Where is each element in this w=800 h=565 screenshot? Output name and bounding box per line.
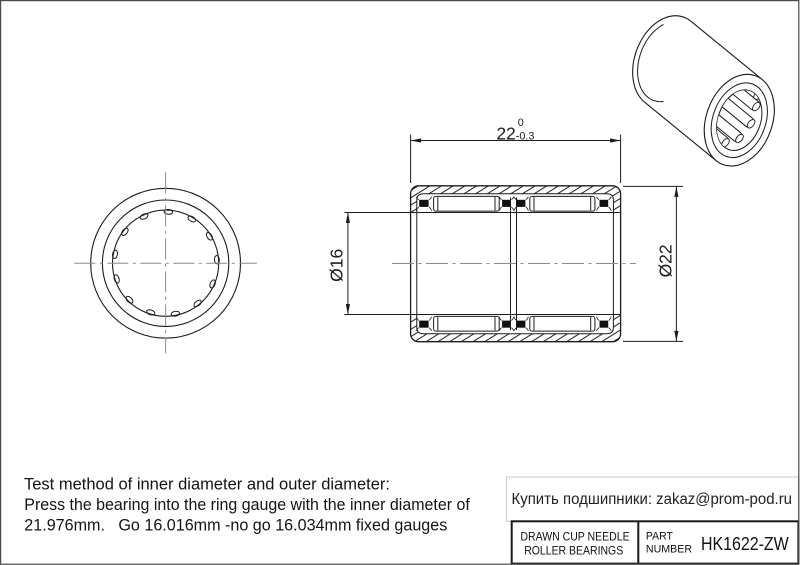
svg-text:HK1622-ZW: HK1622-ZW [701,533,789,554]
svg-text:Ø22: Ø22 [655,244,675,277]
svg-text:-0.3: -0.3 [516,131,535,143]
svg-text:21.976mm. Go 16.016mm -no go: 21.976mm. Go 16.016mm -no go 16.034mm fi… [24,516,447,535]
svg-text:Ø16: Ø16 [327,249,347,282]
svg-text:22: 22 [496,124,515,144]
svg-text:Купить подшипники: zakaz@prom-: Купить подшипники: zakaz@prom-pod.ru [512,491,793,508]
svg-text:Press the bearing into the rin: Press the bearing into the ring gauge wi… [24,495,470,514]
svg-text:Test method of inner diameter: Test method of inner diameter and outer … [24,474,390,493]
svg-text:PART: PART [646,531,673,543]
svg-text:DRAWN CUP NEEDLE: DRAWN CUP NEEDLE [520,530,629,544]
svg-text:NUMBER: NUMBER [646,544,692,556]
svg-text:0: 0 [518,117,524,129]
svg-text:ROLLER BEARINGS: ROLLER BEARINGS [524,543,623,557]
